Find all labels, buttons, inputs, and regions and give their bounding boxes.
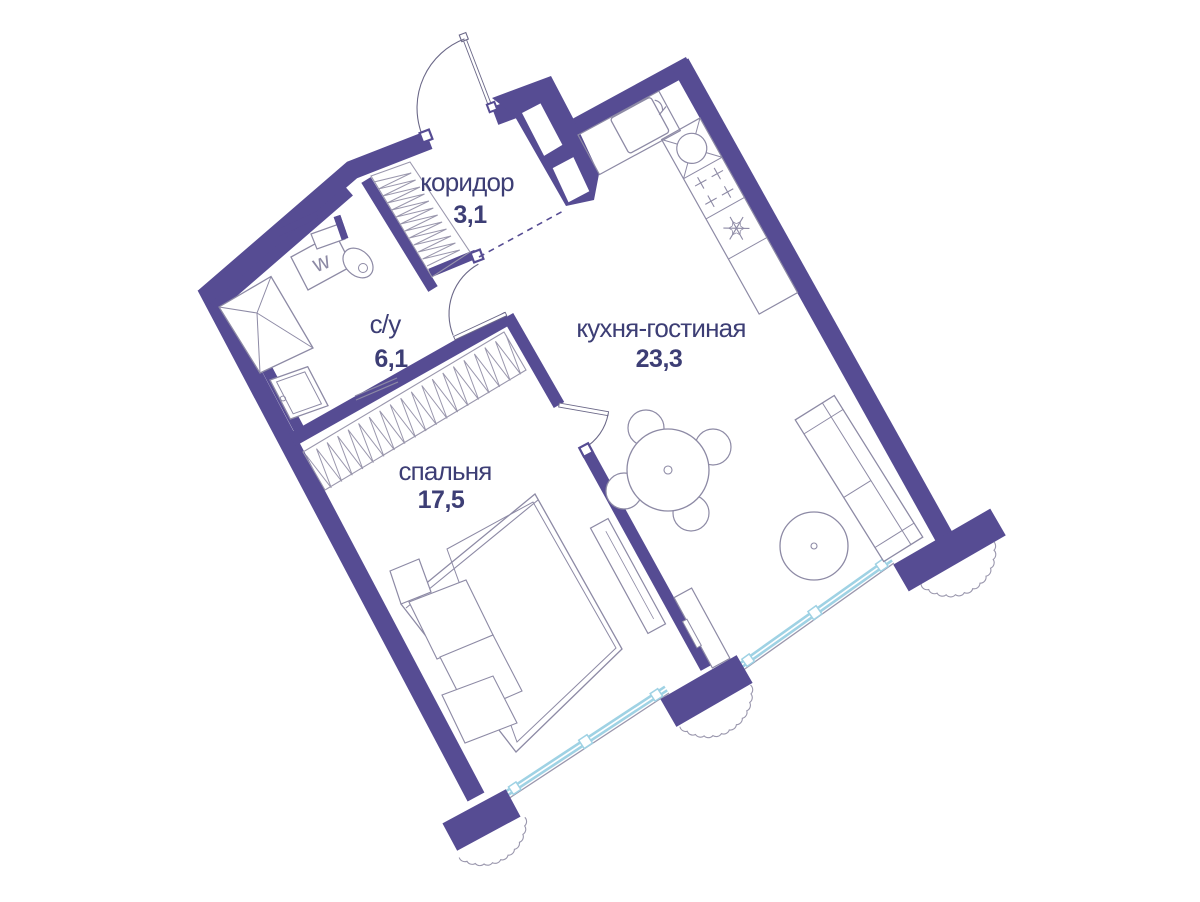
svg-text:23,3: 23,3 xyxy=(636,345,683,373)
svg-text:6,1: 6,1 xyxy=(374,345,408,373)
svg-text:спальня: спальня xyxy=(398,456,491,486)
svg-text:кухня-гостиная: кухня-гостиная xyxy=(576,313,745,343)
svg-text:3,1: 3,1 xyxy=(453,201,487,229)
svg-text:17,5: 17,5 xyxy=(418,486,465,514)
svg-text:коридор: коридор xyxy=(420,167,514,197)
svg-text:с/у: с/у xyxy=(370,309,402,339)
